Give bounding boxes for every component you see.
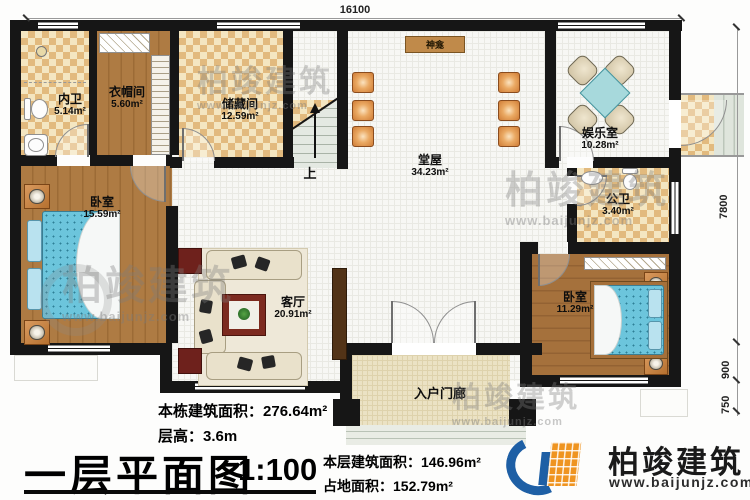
dimension-right-porch: 750 bbox=[720, 384, 732, 414]
side-porch-edge bbox=[681, 93, 744, 95]
floor-plan-canvas: 神龛 内卫5.14m² 衣帽间5.60m² bbox=[0, 0, 750, 500]
brand-logo-building-icon bbox=[547, 442, 582, 486]
wall-segment bbox=[593, 157, 681, 168]
hall-chair bbox=[498, 126, 520, 147]
wall-segment bbox=[170, 157, 182, 168]
cloakroom-door-leaf bbox=[164, 166, 166, 202]
wall-segment bbox=[568, 242, 681, 254]
wardrobe bbox=[584, 257, 666, 270]
room-label-main-hall: 堂屋34.23m² bbox=[395, 153, 465, 179]
dimension-top-width: 16100 bbox=[320, 4, 390, 16]
room-label-entertainment: 娱乐室10.28m² bbox=[565, 126, 635, 152]
plant bbox=[238, 308, 250, 320]
entry-door-left-leaf bbox=[391, 301, 393, 343]
floor-area-text: 本层建筑面积：146.96m² bbox=[323, 452, 481, 472]
bedroom-right-door-leaf bbox=[538, 254, 540, 286]
wall-segment bbox=[10, 20, 21, 355]
sink-basin bbox=[28, 138, 44, 152]
pillow bbox=[648, 289, 662, 318]
porch-pillar bbox=[509, 399, 536, 426]
window bbox=[48, 344, 110, 353]
brand-url: www.baijunjz.com bbox=[609, 474, 750, 490]
hall-chair bbox=[498, 100, 520, 121]
entertainment-door-leaf bbox=[559, 126, 561, 161]
room-label-bedroom-right: 卧室11.29m² bbox=[545, 290, 605, 316]
shrine: 神龛 bbox=[405, 36, 465, 53]
porch-pillar bbox=[333, 399, 360, 426]
wardrobe bbox=[99, 33, 150, 53]
sofa bbox=[206, 352, 302, 380]
room-label-public-bath: 公卫3.40m² bbox=[588, 192, 648, 218]
title-underline bbox=[24, 490, 316, 494]
window bbox=[38, 21, 78, 30]
wall-segment bbox=[170, 31, 179, 155]
hall-chair bbox=[352, 126, 374, 147]
side-table bbox=[178, 248, 202, 274]
watermark-swoosh bbox=[40, 264, 112, 336]
storage-door-leaf bbox=[182, 128, 184, 161]
stairs-up-label: 上 bbox=[295, 166, 325, 182]
toilet bbox=[623, 174, 637, 190]
window bbox=[217, 21, 300, 30]
wall-segment bbox=[337, 31, 348, 169]
wall-segment bbox=[545, 157, 559, 168]
outdoor-pad bbox=[14, 355, 98, 381]
wall-segment bbox=[90, 155, 133, 166]
hall-chair bbox=[498, 72, 520, 93]
total-area-text: 本栋建筑面积：276.64m² bbox=[158, 400, 327, 421]
wall-segment bbox=[545, 31, 556, 157]
hall-chair bbox=[352, 72, 374, 93]
wall-segment bbox=[214, 157, 294, 168]
footprint-text: 占地面积：152.79m² bbox=[323, 476, 453, 496]
nightstand bbox=[24, 184, 50, 209]
room-label-bedroom-left: 卧室15.59m² bbox=[70, 195, 134, 221]
side-door-opening bbox=[669, 100, 681, 148]
room-label-storage: 储藏间12.59m² bbox=[205, 97, 275, 123]
room-label-cloakroom: 衣帽间5.60m² bbox=[96, 85, 158, 111]
entry-door-right-leaf bbox=[474, 301, 476, 343]
sofa-pillow bbox=[199, 299, 213, 314]
dimension-line-top bbox=[27, 18, 682, 19]
wall-segment bbox=[476, 343, 542, 355]
inner-bath-door-leaf bbox=[87, 124, 89, 157]
window bbox=[560, 376, 648, 385]
hall-chair bbox=[352, 100, 374, 121]
plan-scale: 1:100 bbox=[238, 452, 317, 488]
pillow bbox=[648, 321, 662, 350]
shower-partition bbox=[24, 82, 86, 83]
tv-cabinet bbox=[332, 268, 347, 360]
sofa-pillow bbox=[261, 355, 276, 369]
wall-segment bbox=[567, 168, 577, 176]
wall-segment bbox=[10, 155, 57, 166]
stairs-direction-line bbox=[314, 112, 316, 158]
nightstand bbox=[24, 320, 50, 345]
dimension-right-depth: 7800 bbox=[718, 165, 730, 219]
window bbox=[670, 182, 680, 234]
side-porch-edge bbox=[681, 155, 744, 157]
window bbox=[558, 21, 645, 30]
wall-segment bbox=[520, 242, 538, 254]
wall-segment bbox=[567, 204, 577, 242]
shrine-label: 神龛 bbox=[426, 38, 444, 51]
room-label-inner-bath: 内卫5.14m² bbox=[40, 92, 100, 118]
stairs-up-arrow bbox=[310, 103, 320, 113]
shower-head bbox=[36, 46, 47, 57]
room-label-entry-porch: 入户门廊 bbox=[390, 386, 490, 402]
wall-segment bbox=[166, 206, 178, 343]
side-table bbox=[178, 348, 202, 374]
pillow bbox=[27, 220, 42, 262]
room-label-living-room: 客厅20.91m² bbox=[262, 295, 324, 321]
sink bbox=[581, 171, 603, 185]
outdoor-pad bbox=[640, 389, 688, 417]
wall-segment bbox=[283, 31, 293, 168]
wall-segment bbox=[669, 20, 681, 100]
entry-door-threshold bbox=[392, 343, 476, 355]
dimension-line-right bbox=[737, 28, 738, 416]
entry-steps bbox=[346, 425, 526, 445]
toilet-tank bbox=[24, 98, 31, 120]
wall-segment bbox=[520, 242, 532, 387]
dimension-right-bedroom: 900 bbox=[720, 345, 732, 379]
